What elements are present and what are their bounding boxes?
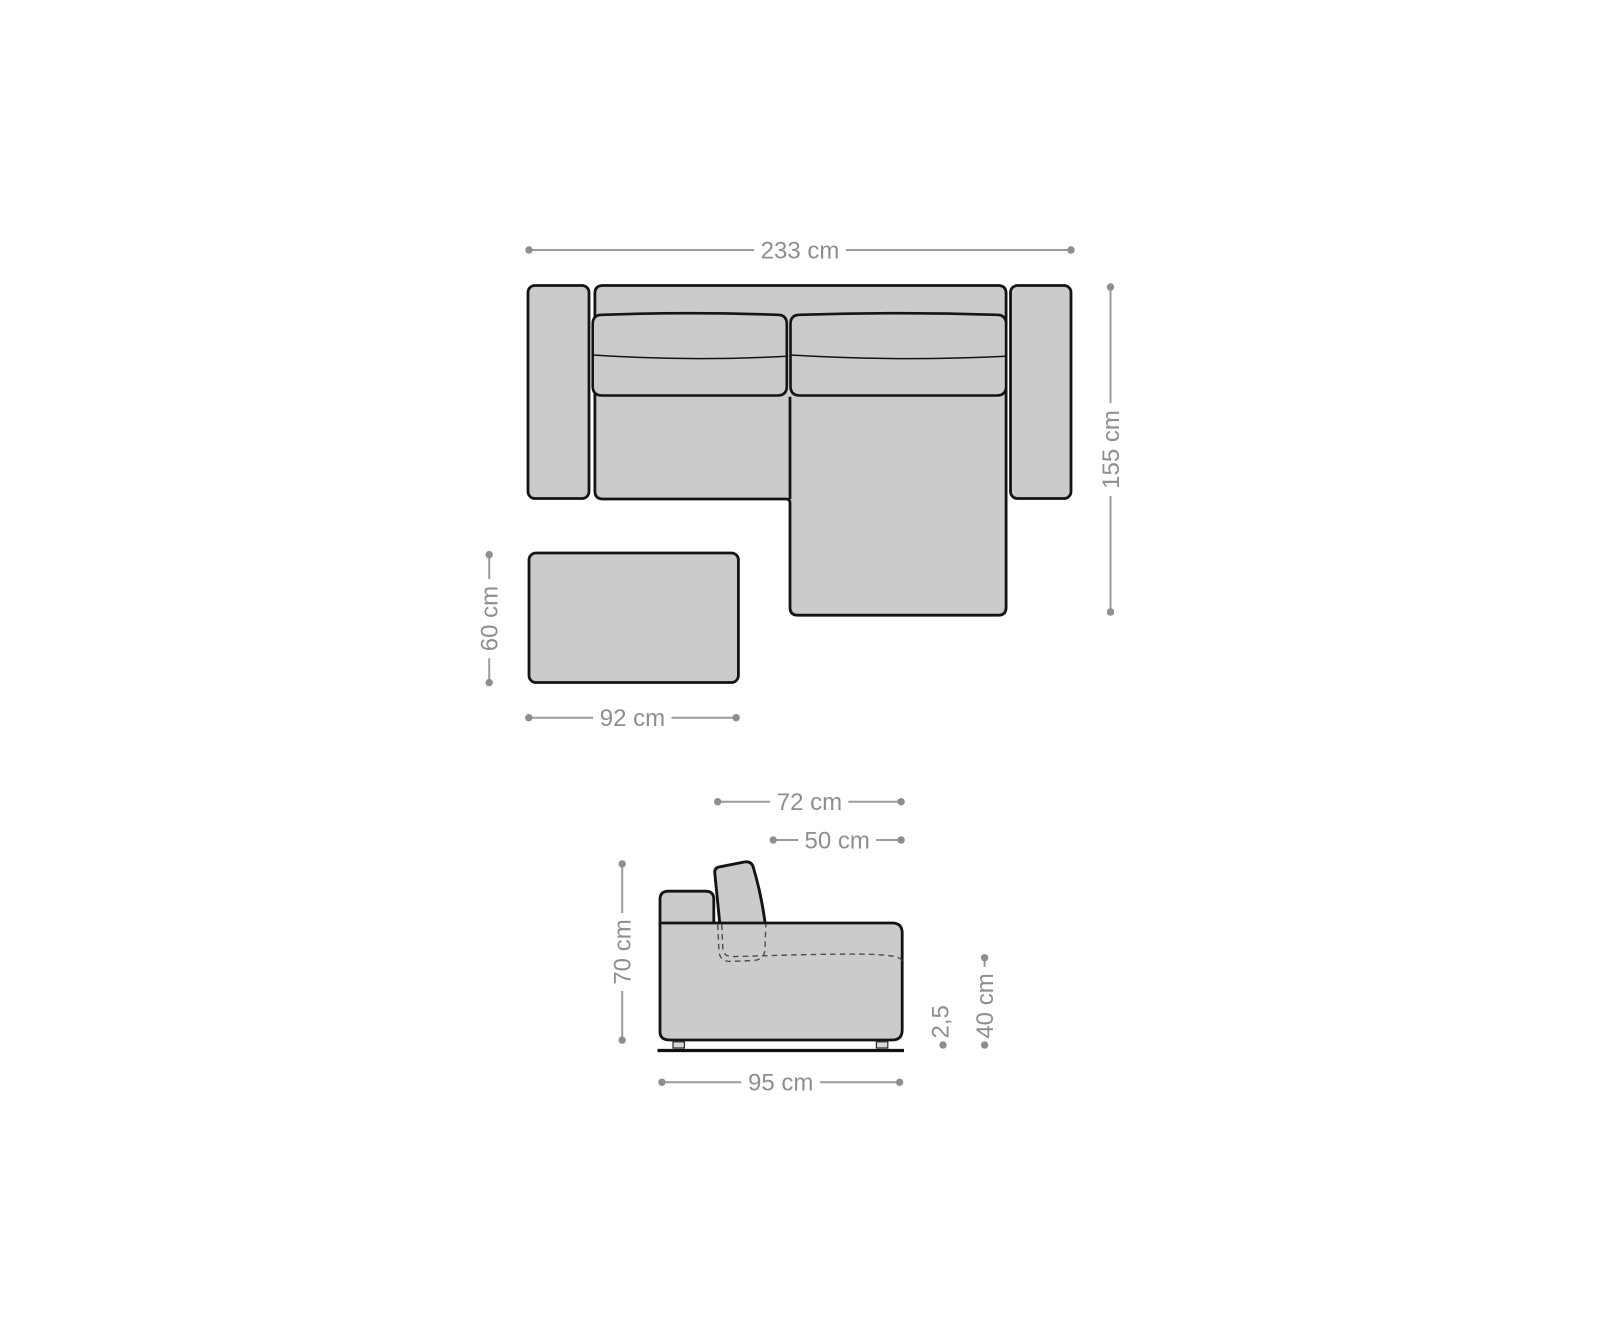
svg-text:50 cm: 50 cm (805, 827, 870, 854)
svg-text:2,5: 2,5 (928, 1005, 955, 1038)
svg-text:70 cm: 70 cm (610, 919, 637, 984)
svg-text:72 cm: 72 cm (777, 789, 842, 816)
svg-text:155 cm: 155 cm (1098, 410, 1125, 489)
svg-text:60 cm: 60 cm (477, 586, 504, 651)
svg-text:95 cm: 95 cm (748, 1070, 813, 1097)
svg-text:40 cm: 40 cm (972, 973, 999, 1038)
svg-text:233 cm: 233 cm (761, 237, 840, 264)
svg-text:92 cm: 92 cm (600, 705, 665, 732)
